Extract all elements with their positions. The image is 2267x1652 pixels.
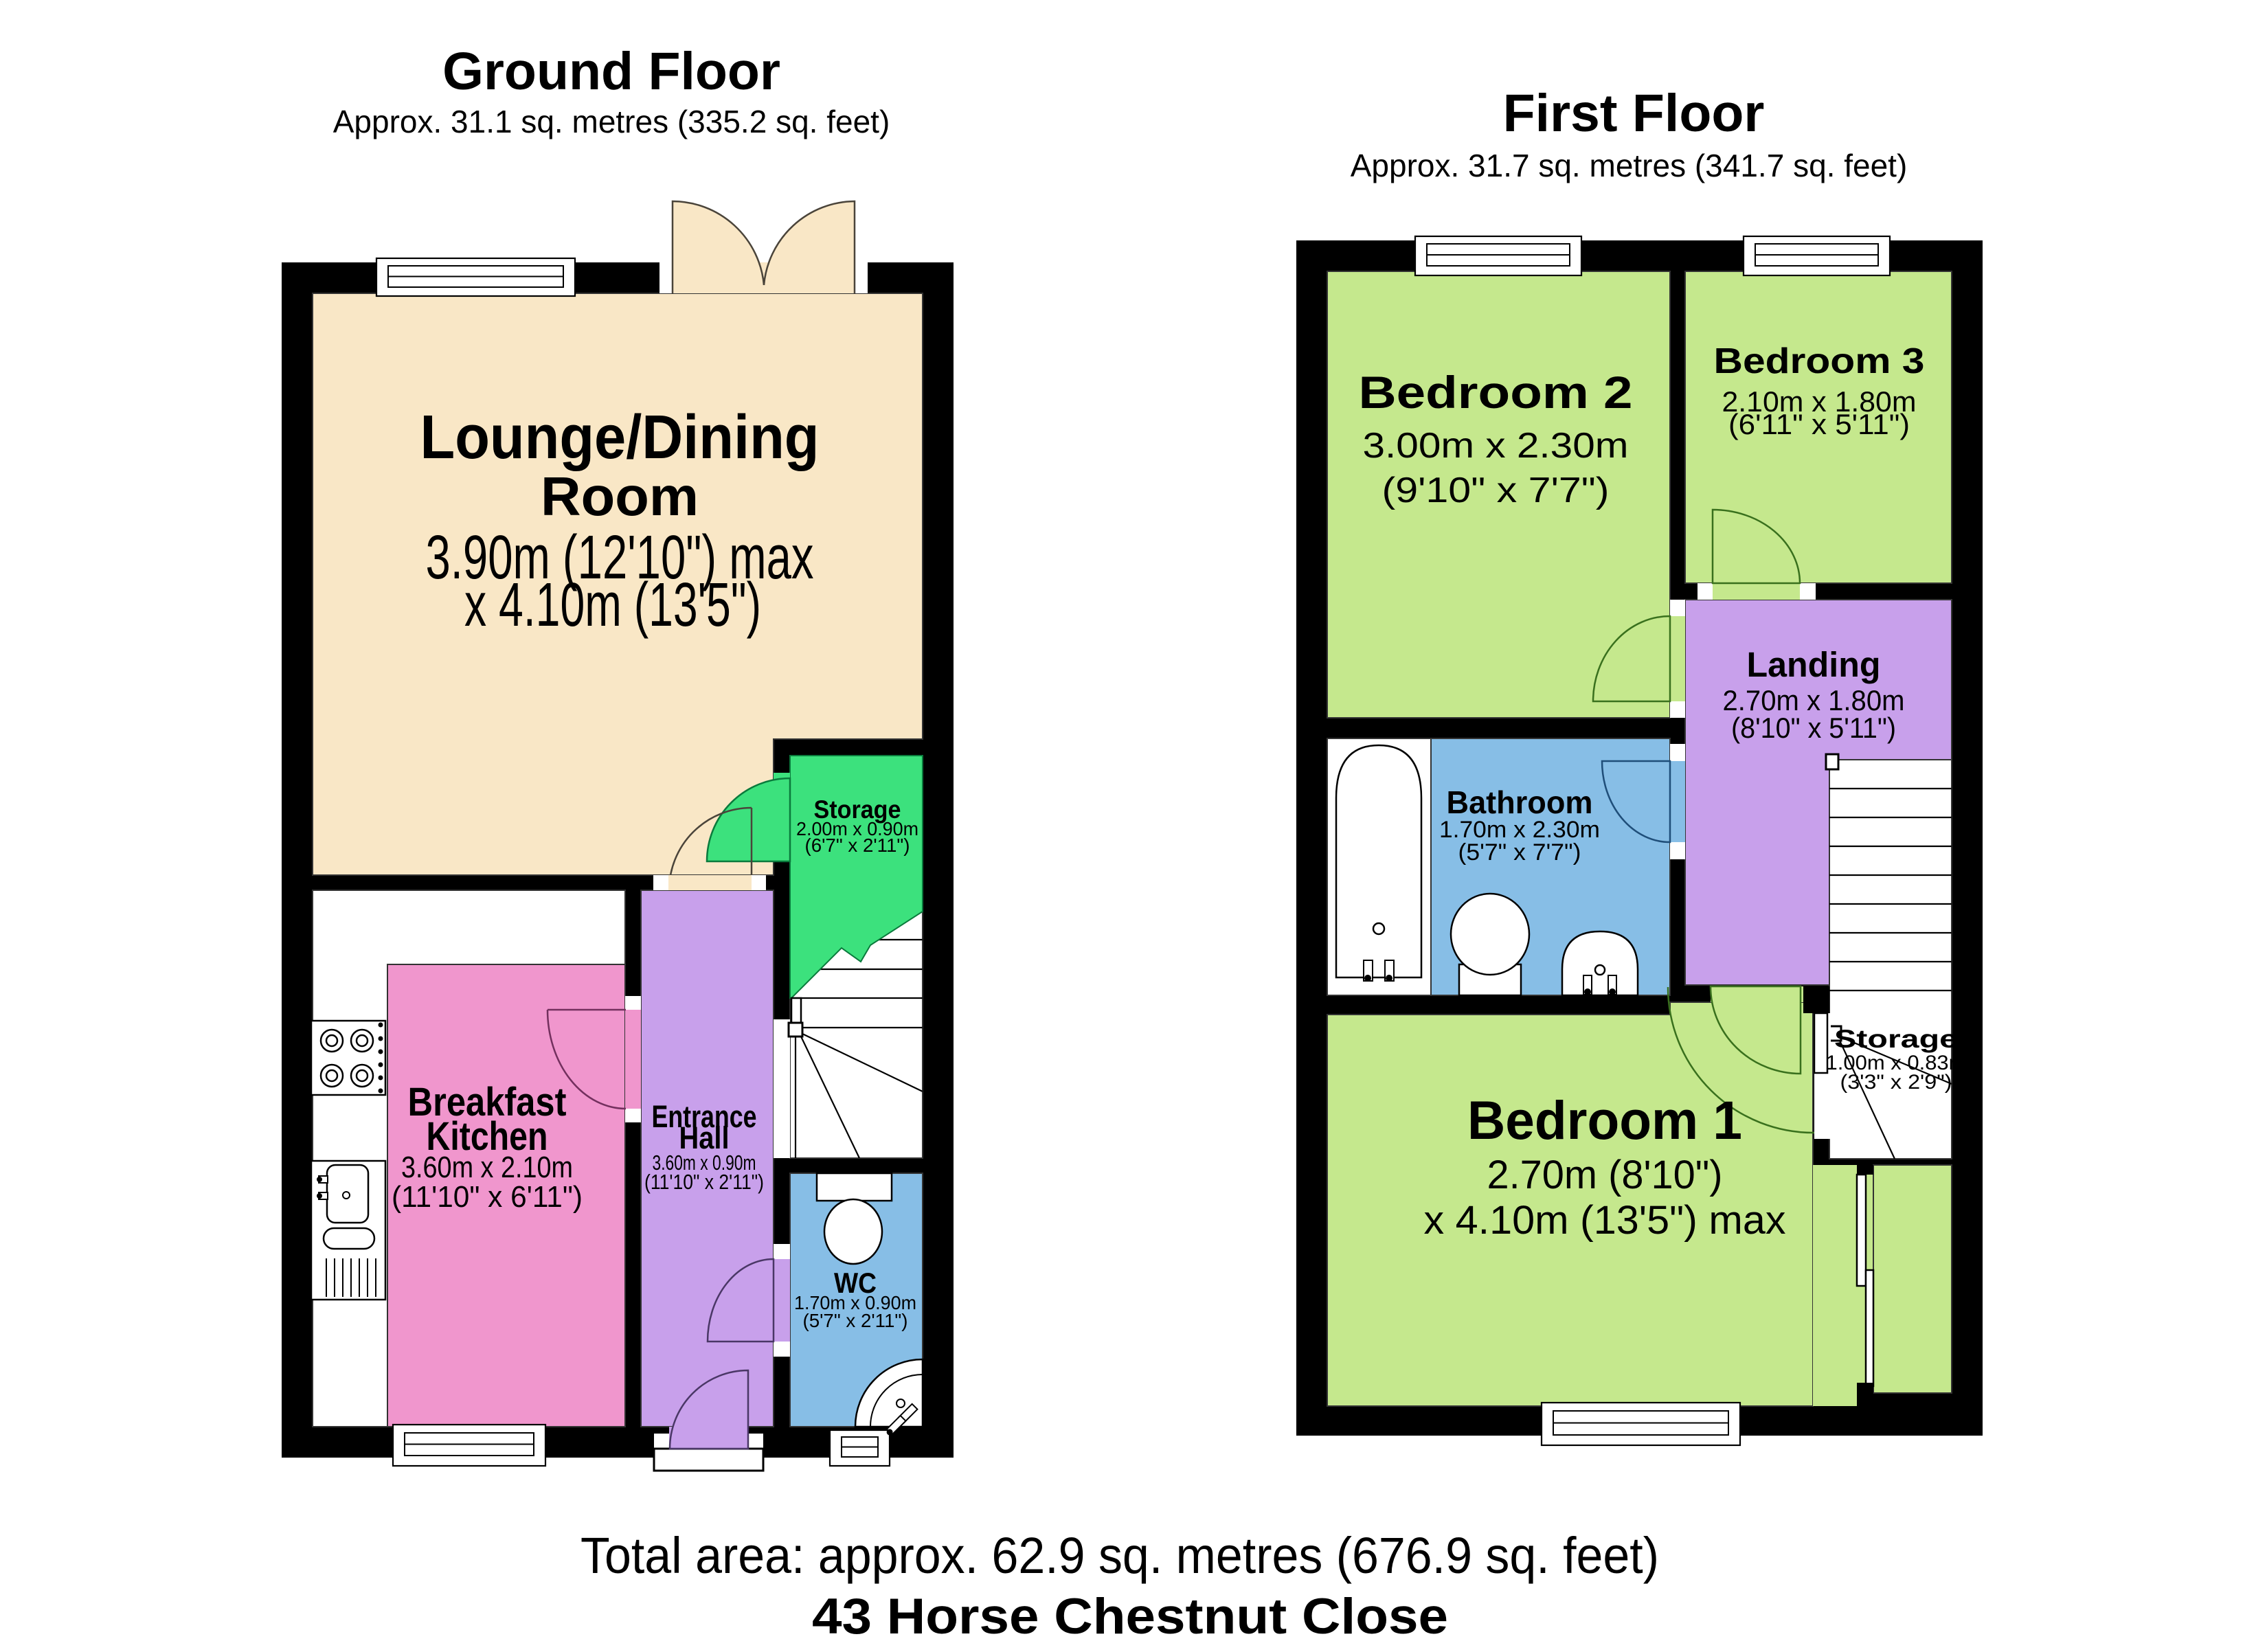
svg-text:(9'10" x 7'7"): (9'10" x 7'7")	[1382, 471, 1610, 510]
svg-text:Bedroom 3: Bedroom 3	[1714, 341, 1925, 381]
svg-text:Ground Floor: Ground Floor	[442, 42, 780, 101]
svg-text:2.70m (8'10"): 2.70m (8'10")	[1487, 1153, 1723, 1197]
svg-text:(5'7" x 2'11"): (5'7" x 2'11")	[803, 1310, 908, 1331]
svg-text:x 4.10m (13'5"): x 4.10m (13'5")	[464, 571, 761, 640]
svg-text:x 4.10m (13'5") max: x 4.10m (13'5") max	[1424, 1198, 1786, 1243]
svg-text:Bedroom 2: Bedroom 2	[1359, 367, 1633, 418]
svg-text:3.00m x 2.30m: 3.00m x 2.30m	[1363, 426, 1629, 466]
svg-text:Total area: approx. 62.9 sq. m: Total area: approx. 62.9 sq. metres (676…	[580, 1527, 1659, 1584]
svg-text:(5'7" x 7'7"): (5'7" x 7'7")	[1458, 839, 1581, 865]
svg-text:Bathroom: Bathroom	[1447, 784, 1593, 820]
svg-text:Landing: Landing	[1747, 645, 1881, 684]
svg-text:(11'10" x 2'11"): (11'10" x 2'11")	[644, 1170, 764, 1194]
svg-text:First Floor: First Floor	[1503, 84, 1765, 143]
svg-text:(6'11" x 5'11"): (6'11" x 5'11")	[1728, 408, 1910, 440]
svg-text:Storage: Storage	[1834, 1025, 1958, 1053]
svg-text:Bedroom 1: Bedroom 1	[1467, 1089, 1742, 1151]
svg-text:(8'10" x 5'11"): (8'10" x 5'11")	[1731, 712, 1896, 744]
svg-text:Room: Room	[541, 466, 699, 527]
svg-text:Approx. 31.1 sq. metres (335.2: Approx. 31.1 sq. metres (335.2 sq. feet)	[333, 104, 890, 139]
svg-text:43 Horse Chestnut Close: 43 Horse Chestnut Close	[812, 1589, 1448, 1644]
svg-text:(6'7" x 2'11"): (6'7" x 2'11")	[805, 835, 910, 856]
svg-text:3.60m x 2.10m: 3.60m x 2.10m	[401, 1151, 573, 1184]
svg-text:Lounge/Dining: Lounge/Dining	[420, 403, 820, 472]
svg-text:(11'10" x 6'11"): (11'10" x 6'11")	[392, 1180, 583, 1214]
svg-text:Approx. 31.7 sq. metres (341.7: Approx. 31.7 sq. metres (341.7 sq. feet)	[1351, 148, 1908, 183]
svg-text:(3'3" x 2'9"): (3'3" x 2'9")	[1840, 1071, 1952, 1094]
